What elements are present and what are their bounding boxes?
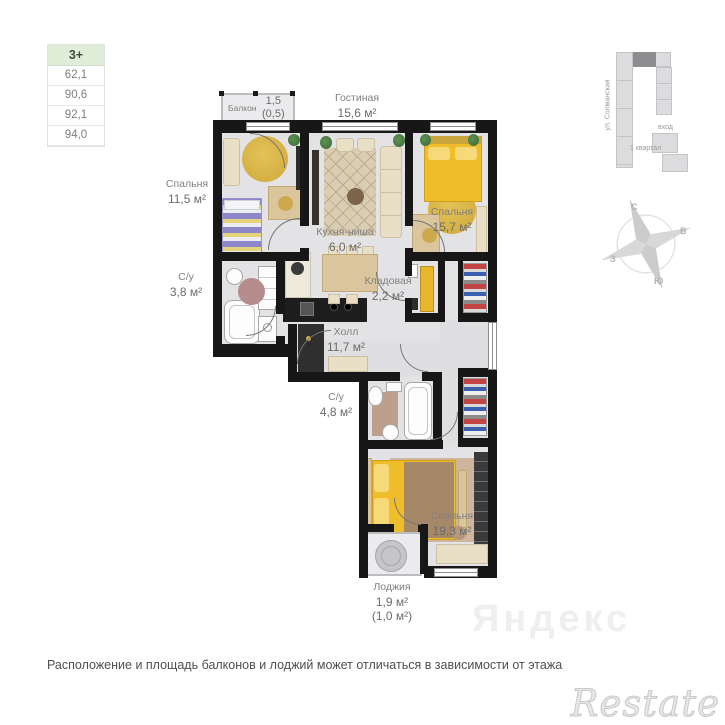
- locker: [420, 266, 434, 312]
- building-block: [656, 67, 672, 115]
- window: [322, 122, 398, 131]
- sofa: [380, 146, 402, 238]
- room-label-bath1: С/у 3,8 м²: [170, 271, 202, 299]
- balcony-post: [253, 91, 258, 96]
- pillow: [224, 200, 260, 210]
- wall: [300, 120, 309, 226]
- street-label: ул. Солманская: [605, 79, 612, 130]
- wall: [213, 120, 222, 357]
- wall: [405, 313, 445, 322]
- round-rug: [238, 278, 265, 305]
- plant: [393, 134, 405, 147]
- console: [328, 356, 368, 372]
- compass-south: Ю: [654, 276, 663, 286]
- wall: [405, 261, 412, 276]
- entrance-label: вход: [658, 124, 673, 131]
- sofa: [223, 138, 240, 186]
- wall: [218, 252, 309, 261]
- compass-east: В: [680, 226, 687, 236]
- building-block: [662, 154, 688, 172]
- wardrobe-rack: [463, 263, 487, 313]
- plant: [468, 134, 479, 146]
- pillow: [428, 147, 450, 160]
- room-label-hall: Холл 11,7 м²: [327, 326, 365, 354]
- wall: [420, 524, 428, 574]
- room-label-bedroom1: Спальня 11,5 м²: [166, 178, 208, 206]
- dining-chair: [346, 294, 358, 304]
- room-label-storage: Кладовая 2,2 м²: [364, 275, 411, 303]
- vanity-table: [436, 544, 488, 564]
- window: [434, 568, 478, 577]
- wall: [276, 252, 285, 314]
- stove-burner: [330, 303, 338, 311]
- wall: [276, 336, 285, 357]
- room-label-loggia: Лоджия 1,9 м² (1,0 м²): [372, 581, 412, 624]
- compass-west: З: [610, 254, 616, 264]
- wall: [366, 524, 394, 532]
- pillow: [374, 464, 389, 492]
- wall: [359, 440, 443, 449]
- plant: [288, 134, 300, 146]
- shelf: [386, 382, 402, 392]
- window: [488, 322, 497, 370]
- wall: [366, 372, 400, 381]
- loggia-chair-inner: [381, 546, 401, 566]
- bathtub-inner: [408, 387, 428, 435]
- room-label-bedroom3: Спальня 19,3 м²: [431, 510, 473, 538]
- wall: [288, 372, 368, 382]
- ghost-watermark: Яндекс: [472, 598, 631, 641]
- balcony-post: [219, 91, 224, 96]
- chair: [278, 196, 293, 211]
- compass: С В З Ю: [598, 196, 694, 292]
- room-label-balcony: Балкон: [228, 103, 257, 113]
- plant: [420, 134, 431, 146]
- counter-sink: [300, 302, 314, 316]
- tv-console: [312, 150, 319, 225]
- balcony-post: [290, 91, 295, 96]
- room-label-kitchen: Кухня-ниша 6,0 м²: [316, 226, 374, 254]
- location-minimap: ул. Солманская вход 1 квартал: [596, 40, 700, 180]
- wall: [405, 252, 497, 261]
- stove-burner: [344, 303, 352, 311]
- dining-chair: [328, 294, 340, 304]
- shelf: [476, 206, 487, 254]
- wardrobe: [474, 452, 488, 548]
- wall: [460, 313, 497, 322]
- armchair: [357, 138, 375, 152]
- room-label-bedroom2: Спальня 15,7 м²: [431, 206, 473, 234]
- armchair: [336, 138, 354, 152]
- wardrobe-rack: [463, 378, 487, 436]
- wall: [359, 372, 368, 578]
- toilet: [368, 386, 383, 406]
- room-label-living: Гостиная 15,6 м²: [335, 92, 379, 120]
- district-label: 1 квартал: [630, 145, 661, 152]
- compass-rose-icon: [598, 196, 694, 292]
- room-label-bath2: С/у 4,8 м²: [320, 391, 352, 419]
- sink: [382, 424, 399, 441]
- window: [246, 122, 290, 131]
- pillow: [374, 498, 389, 526]
- wall: [458, 368, 463, 447]
- footer-note: Расположение и площадь балконов и лоджий…: [47, 658, 562, 672]
- pillow: [455, 147, 477, 160]
- window: [430, 122, 476, 131]
- brand-watermark: Restate: [571, 682, 720, 725]
- kitchen-sink: [291, 262, 304, 275]
- coffee-table: [347, 188, 364, 205]
- room-label-balcony-area: 1,5 (0,5): [262, 95, 285, 120]
- wall: [438, 261, 445, 320]
- compass-north: С: [631, 202, 638, 212]
- wall: [460, 438, 497, 447]
- plant: [320, 136, 332, 149]
- floorplan-page: 3+ 62,1 90,6 92,1 94,0: [0, 0, 725, 725]
- unit-location-marker: [633, 52, 656, 67]
- wall: [405, 120, 413, 226]
